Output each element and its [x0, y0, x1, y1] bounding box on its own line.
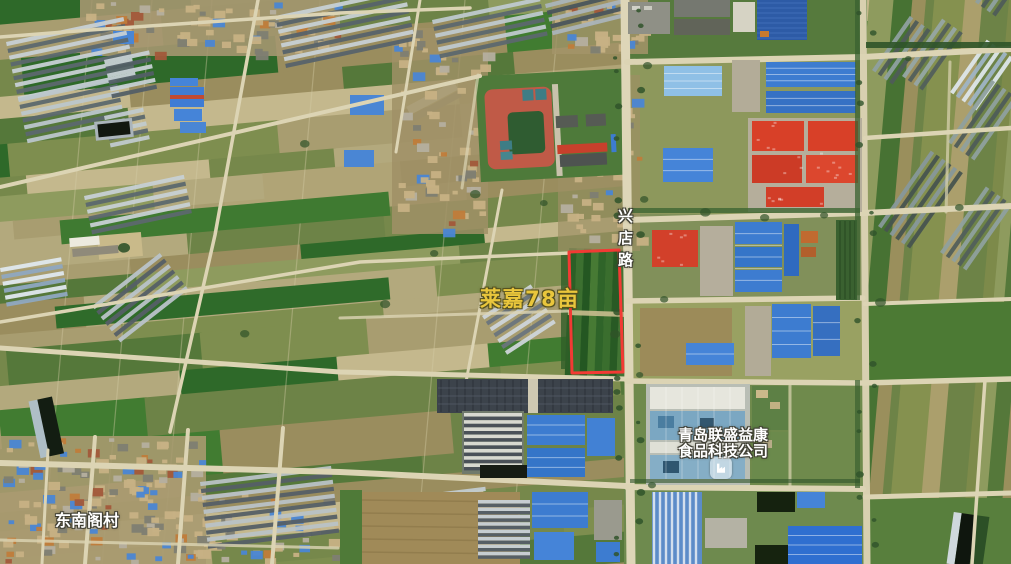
road-name-char: 店	[615, 227, 636, 249]
road-name-char: 兴	[615, 205, 636, 227]
factory-glyph	[713, 460, 729, 476]
factory-poi-icon[interactable]	[710, 457, 732, 479]
village-name-label: 东南阁村	[55, 507, 119, 531]
satellite-imagery	[0, 0, 1011, 564]
parcel-area-label: 莱嘉78亩	[480, 283, 580, 313]
road-name-label: 兴 店 路	[615, 205, 636, 271]
company-name-label: 青岛联盛益康 食品科技公司	[666, 428, 780, 459]
road-name-char: 路	[615, 249, 636, 271]
satellite-map-view[interactable]: 兴 店 路 莱嘉78亩 青岛联盛益康 食品科技公司 东南阁村	[0, 0, 1011, 564]
